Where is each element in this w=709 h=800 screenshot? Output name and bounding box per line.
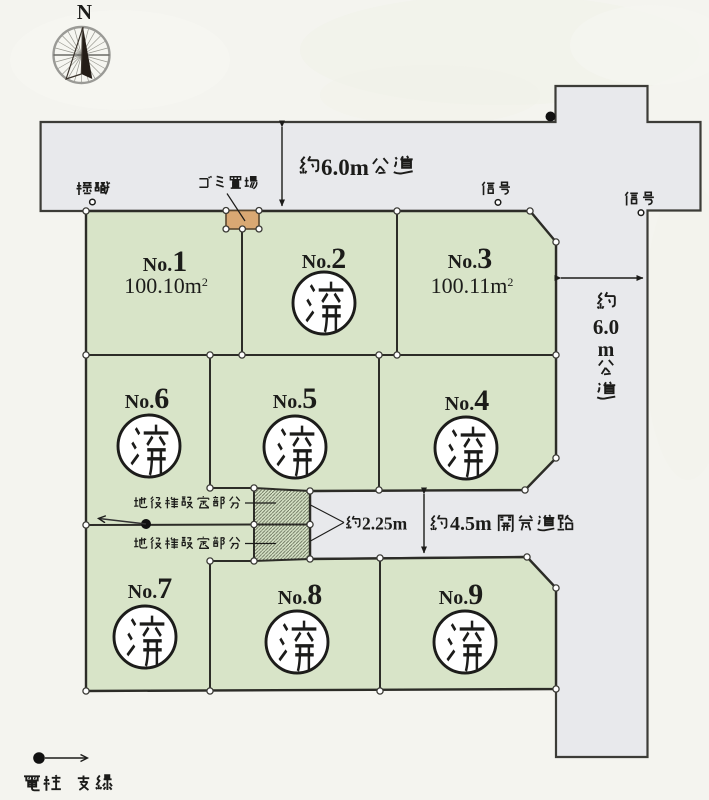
svg-text:4.5m: 4.5m [450, 513, 492, 535]
svg-text:6.0m: 6.0m [321, 155, 369, 180]
svg-text:100.10m2: 100.10m2 [124, 273, 208, 298]
svg-text:2.25m: 2.25m [362, 514, 408, 534]
svg-text:N: N [77, 0, 92, 24]
svg-text:100.11m2: 100.11m2 [431, 273, 514, 298]
svg-text:6.0: 6.0 [593, 315, 619, 339]
svg-text:m: m [598, 339, 615, 361]
